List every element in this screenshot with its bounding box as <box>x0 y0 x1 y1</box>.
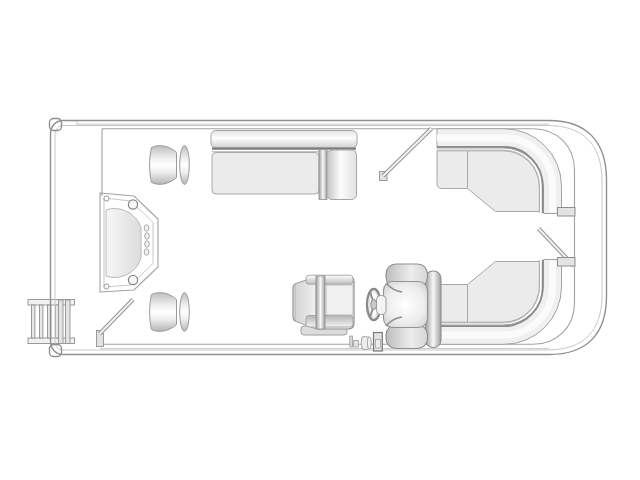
ladder-rung <box>32 305 35 338</box>
pontoon-floor-plan <box>0 0 640 480</box>
bench-backrest <box>211 131 357 149</box>
console-front-band <box>306 316 353 328</box>
door-bolt-small <box>104 284 109 289</box>
pedestal-base <box>180 146 190 185</box>
chair-armrest-bottom <box>386 325 428 349</box>
port-bench-lounge <box>211 131 357 200</box>
ladder-stile <box>59 300 64 344</box>
door-bolt <box>128 200 137 209</box>
bench-seat <box>212 153 319 195</box>
chaise-end-cushion <box>327 150 357 200</box>
ladder-rung <box>40 305 43 338</box>
pedestal-body <box>150 146 177 185</box>
fitting-box-lid <box>375 340 380 349</box>
lounge-end-cap <box>558 208 576 217</box>
wheel-hub <box>371 300 377 310</box>
fitting-block <box>354 341 359 348</box>
door-bolt-small <box>104 196 109 201</box>
helm-console <box>293 275 354 335</box>
floor-plan-canvas <box>0 0 640 480</box>
lounge-end-cap <box>558 258 576 267</box>
fitting-bracket <box>350 336 353 347</box>
pedestal-table-forward <box>150 146 190 185</box>
chair-front-pad <box>377 296 387 315</box>
console-groove <box>316 276 325 329</box>
page-background <box>0 0 640 480</box>
fitting-cup-base <box>367 337 371 350</box>
pedestal-base <box>180 293 190 332</box>
console-top-band <box>306 275 353 284</box>
pedestal-body <box>150 293 177 332</box>
boarding-ladder <box>28 300 75 344</box>
ladder-stile <box>66 300 71 344</box>
bow-door-step-pad <box>106 209 141 278</box>
chair-seat <box>384 282 428 328</box>
door-bolt <box>128 275 137 284</box>
bench-armrest-divider <box>319 150 327 200</box>
captains-chair <box>377 264 442 349</box>
console-dash-panel <box>326 285 353 315</box>
pedestal-table-aft <box>150 293 190 332</box>
